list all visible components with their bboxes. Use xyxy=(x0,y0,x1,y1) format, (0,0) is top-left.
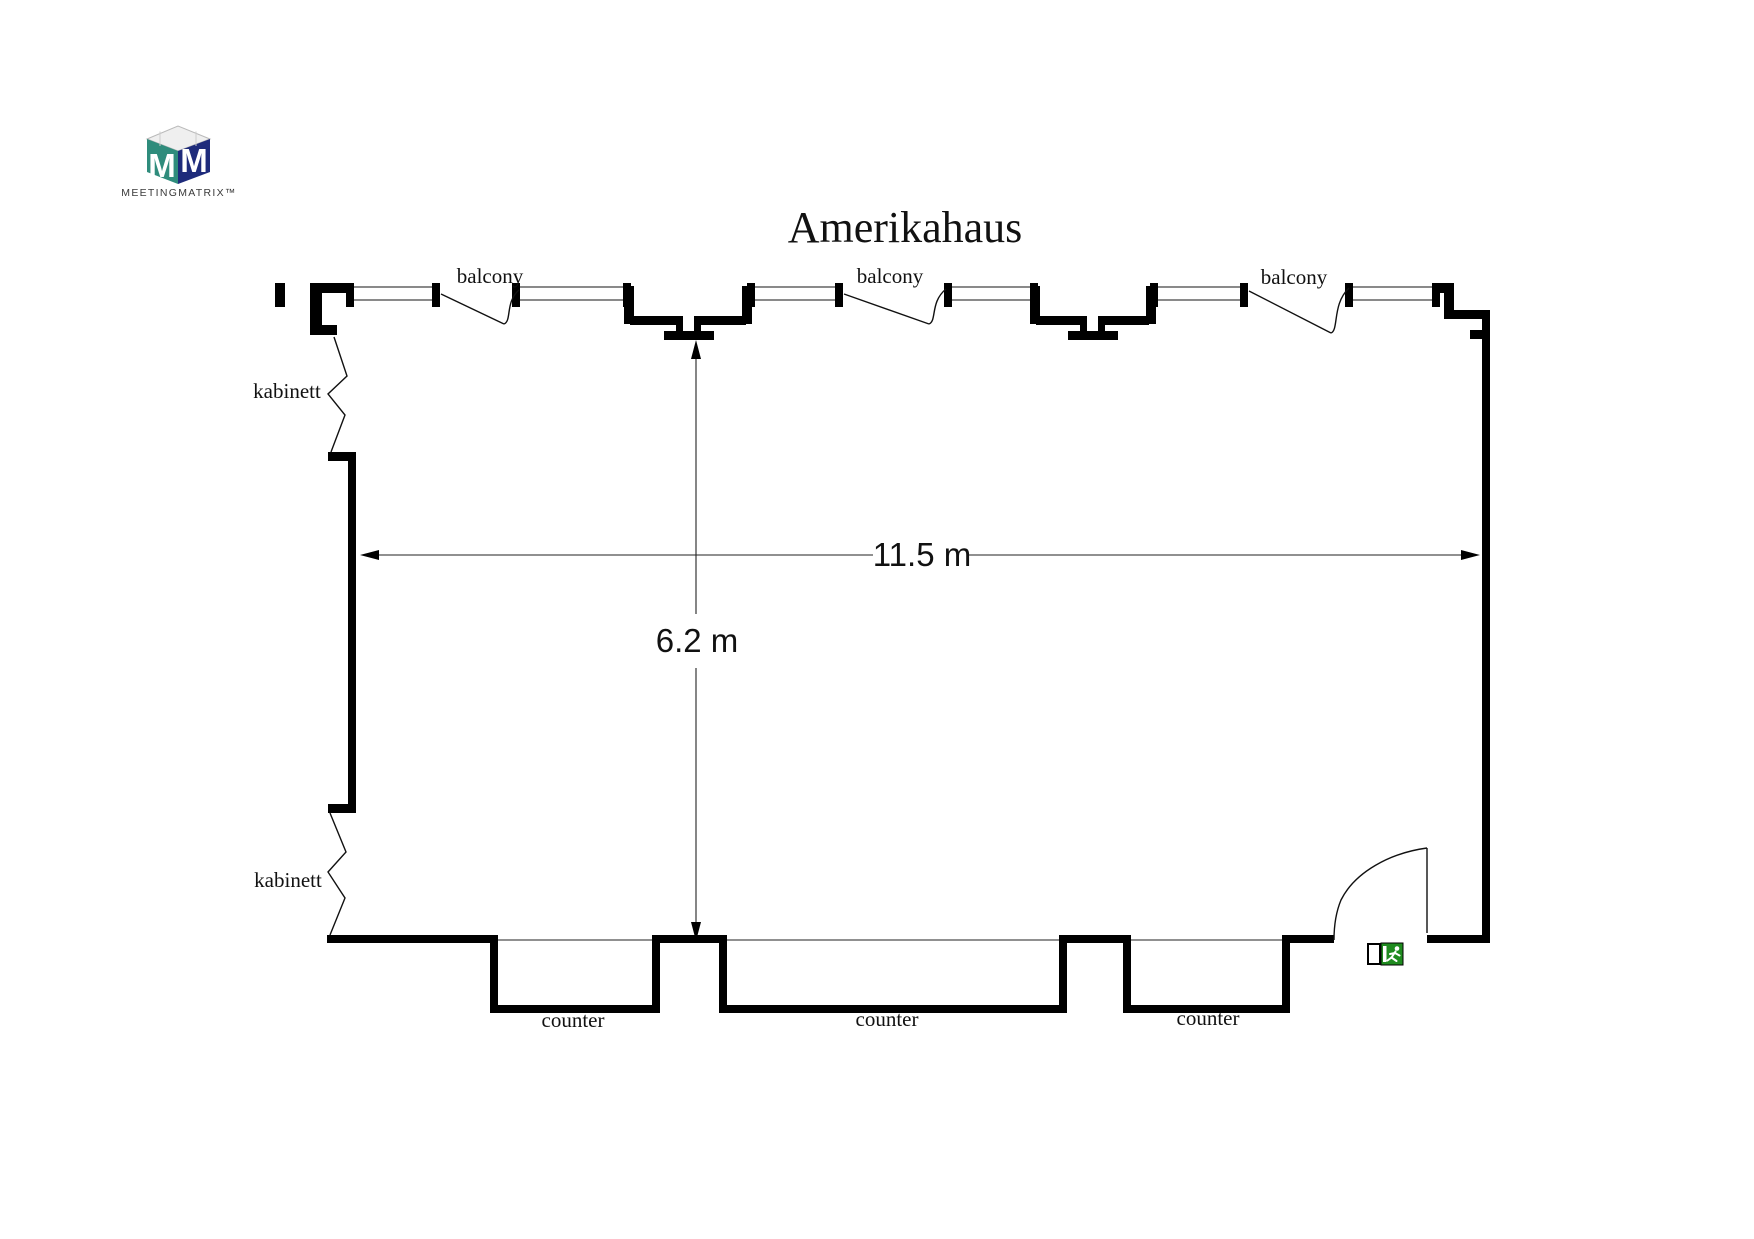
depth-dimension-label: 6.2 m xyxy=(656,622,739,659)
meetingmatrix-logo: M M MEETINGMATRIX™ xyxy=(121,126,236,199)
kabinett-label-1: kabinett xyxy=(253,379,321,403)
window xyxy=(951,287,1031,300)
balcony-door-leaf xyxy=(844,294,929,324)
left-wall xyxy=(328,452,356,813)
window xyxy=(1157,287,1241,300)
balcony-door-swing xyxy=(929,289,946,324)
logo-monogram-right: M xyxy=(180,142,208,179)
door-swing-arc xyxy=(1334,848,1427,940)
floor-plan-page: M M MEETINGMATRIX™ Amerikahaus xyxy=(0,0,1754,1239)
exit-door xyxy=(1334,848,1427,940)
depth-dimension: 6.2 m xyxy=(656,340,739,941)
logo-monogram-left: M xyxy=(148,147,176,184)
kabinett-label-2: kabinett xyxy=(254,868,322,892)
arrowhead-up xyxy=(691,340,701,359)
balcony-label-2: balcony xyxy=(857,264,924,288)
balcony-door-leaf xyxy=(441,294,504,324)
counter-label-2: counter xyxy=(856,1007,919,1031)
balcony-door-leaf xyxy=(1249,291,1331,333)
window xyxy=(754,287,836,300)
counter-label-1: counter xyxy=(542,1008,605,1032)
kabinett-opening-break-2 xyxy=(328,813,346,935)
top-wall-pier-1 xyxy=(624,286,752,340)
balcony-label-3: balcony xyxy=(1261,265,1328,289)
window xyxy=(353,287,433,300)
window xyxy=(1352,287,1433,300)
floor-plan-canvas: M M MEETINGMATRIX™ Amerikahaus xyxy=(0,0,1754,1239)
width-dimension: 11.5 m xyxy=(360,536,1480,573)
width-dimension-label: 11.5 m xyxy=(873,536,971,573)
page-title: Amerikahaus xyxy=(788,203,1023,252)
window xyxy=(519,287,624,300)
logo-brand-text: MEETINGMATRIX™ xyxy=(121,187,236,199)
exit-sign-door-panel xyxy=(1368,944,1380,964)
counter-label-3: counter xyxy=(1177,1006,1240,1030)
arrowhead-left xyxy=(360,550,379,560)
bottom-wall xyxy=(327,935,1490,1013)
kabinett-opening-break-1 xyxy=(328,337,347,452)
balcony-label-1: balcony xyxy=(457,264,524,288)
arrowhead-right xyxy=(1461,550,1480,560)
top-wall-pier-2 xyxy=(1030,286,1156,340)
top-wall-left-corner xyxy=(275,283,354,335)
emergency-exit-sign xyxy=(1368,943,1403,965)
right-wall xyxy=(1482,310,1490,942)
